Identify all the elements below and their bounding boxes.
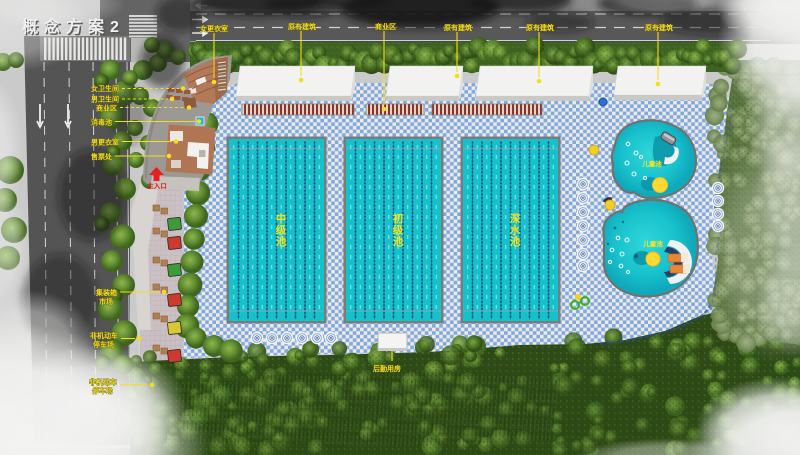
svg-text:非机动车: 非机动车 — [90, 331, 118, 340]
svg-text:商业区: 商业区 — [96, 104, 117, 113]
svg-text:原有建筑: 原有建筑 — [288, 22, 316, 31]
svg-text:后勤用房: 后勤用房 — [373, 364, 401, 373]
svg-text:消毒池: 消毒池 — [91, 118, 112, 127]
svg-text:原有建筑: 原有建筑 — [526, 23, 554, 32]
svg-text:儿童池: 儿童池 — [641, 159, 662, 168]
svg-text:原有建筑: 原有建筑 — [645, 23, 673, 32]
svg-text:女更衣室: 女更衣室 — [200, 24, 228, 33]
svg-text:女卫生间: 女卫生间 — [91, 84, 119, 93]
svg-text:儿童池: 儿童池 — [642, 239, 663, 248]
svg-text:中级池: 中级池 — [276, 212, 287, 248]
svg-text:商业区: 商业区 — [375, 22, 396, 31]
svg-text:初级池: 初级池 — [393, 212, 404, 248]
svg-text:原有建筑: 原有建筑 — [444, 23, 472, 32]
svg-text:主入口: 主入口 — [147, 181, 167, 190]
svg-text:停车场: 停车场 — [93, 340, 114, 349]
svg-text:停车场: 停车场 — [92, 386, 113, 395]
svg-text:男卫生间: 男卫生间 — [91, 95, 119, 104]
svg-text:深水池: 深水池 — [509, 212, 521, 248]
svg-text:集装箱: 集装箱 — [95, 288, 117, 297]
svg-text:市场: 市场 — [99, 297, 113, 306]
svg-text:概念方案2: 概念方案2 — [22, 17, 125, 36]
svg-text:男更衣室: 男更衣室 — [91, 138, 119, 147]
svg-text:非机动车: 非机动车 — [89, 378, 117, 387]
svg-text:售票处: 售票处 — [91, 152, 113, 161]
